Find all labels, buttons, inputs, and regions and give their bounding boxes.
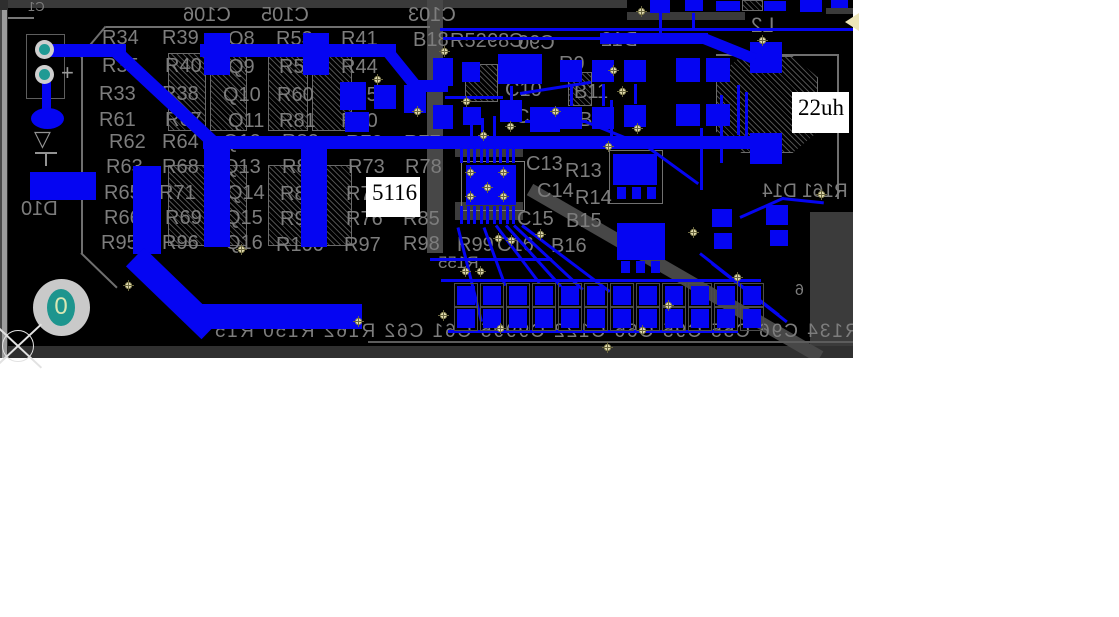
silkscreen-label: R40 xyxy=(165,56,202,76)
qfp-pin xyxy=(506,206,509,224)
silkscreen-label: R60 xyxy=(277,85,314,105)
silkscreen-label: C105 xyxy=(261,5,309,25)
sot-body xyxy=(613,154,657,185)
connector-pad xyxy=(691,286,709,305)
qfp-pin xyxy=(473,145,476,163)
silkscreen-label: R64 xyxy=(162,132,199,152)
smd-pad xyxy=(714,233,732,249)
top-edge-pad xyxy=(650,0,670,13)
through-hole-pad xyxy=(35,40,54,59)
origin-crosshair-icon xyxy=(0,321,43,371)
copper-trace xyxy=(200,44,396,57)
smd-pad xyxy=(340,82,366,110)
copper-bar xyxy=(196,304,362,329)
copper-bar xyxy=(133,166,161,254)
tick-line xyxy=(8,17,34,19)
diode-stem xyxy=(45,154,47,166)
left-gutter xyxy=(0,0,8,358)
via xyxy=(482,182,493,193)
silkscreen-label: R52 xyxy=(450,31,487,51)
top-edge-pad xyxy=(831,0,848,8)
silkscreen-label: R155 xyxy=(438,254,479,271)
qfp-pin xyxy=(493,145,496,163)
via xyxy=(498,191,509,202)
bottom-band xyxy=(8,346,853,358)
smd-pad xyxy=(433,105,453,129)
signal-trace xyxy=(430,258,552,261)
smd-pad xyxy=(676,104,700,126)
connector-pad xyxy=(535,309,553,328)
left-gutter-top xyxy=(0,0,8,10)
via xyxy=(372,74,383,85)
via xyxy=(438,310,449,321)
via xyxy=(495,323,506,334)
signal-trace xyxy=(441,279,761,282)
smd-pad xyxy=(374,85,396,109)
signal-trace xyxy=(745,92,748,137)
cursor-arrow-icon xyxy=(845,13,859,31)
copper-bar xyxy=(30,172,96,200)
board-outline-d2 xyxy=(80,252,117,288)
silkscreen-label: ▽ xyxy=(34,128,51,150)
sot-pin xyxy=(636,261,645,273)
qfp-pin xyxy=(493,206,496,224)
connector-pad xyxy=(717,286,735,305)
via xyxy=(608,65,619,76)
silkscreen-label: Q14 xyxy=(227,183,265,203)
via xyxy=(632,123,643,134)
silkscreen-label: R62 xyxy=(109,132,146,152)
via xyxy=(603,141,614,152)
qfp-pin xyxy=(486,206,489,224)
top-edge-pad xyxy=(685,0,703,11)
via xyxy=(505,121,516,132)
smd-pad xyxy=(463,107,481,125)
sot-pin xyxy=(621,261,630,273)
silkscreen-label: R78 xyxy=(405,157,442,177)
silkscreen-label: R96 xyxy=(162,233,199,253)
silkscreen-label: R69 xyxy=(165,208,202,228)
qfp-pin xyxy=(467,206,470,224)
via xyxy=(663,300,674,311)
smd-pad xyxy=(560,107,582,129)
connector-pad xyxy=(613,309,631,328)
copper-bar xyxy=(301,149,327,247)
via xyxy=(236,244,247,255)
signal-trace xyxy=(659,13,662,33)
silkscreen-label: C1 xyxy=(28,0,45,13)
via xyxy=(353,316,364,327)
connector-pad xyxy=(691,309,709,328)
via xyxy=(688,227,699,238)
via xyxy=(550,106,561,117)
annotation-box-5116[interactable]: 5116 xyxy=(366,177,420,217)
connector-pad xyxy=(561,309,579,328)
pad-zero-label: 0 xyxy=(47,289,75,326)
board-outline-v xyxy=(81,56,83,254)
via xyxy=(493,233,504,244)
silkscreen-label: R98 xyxy=(403,234,440,254)
silkscreen-label: R73 xyxy=(348,157,385,177)
sot-pin xyxy=(647,187,656,199)
signal-trace xyxy=(448,330,738,333)
silkscreen-label: R97 xyxy=(344,235,381,255)
inductor-pad xyxy=(750,133,782,164)
signal-trace xyxy=(440,28,853,31)
connector-pad xyxy=(743,286,761,305)
silkscreen-label: R14 xyxy=(575,188,612,208)
smd-pad xyxy=(462,62,480,82)
annotation-box-22uh[interactable]: 22uh xyxy=(792,92,849,133)
smd-pad xyxy=(345,112,369,132)
silkscreen-label: R13 xyxy=(565,161,602,181)
silkscreen-label: 6 xyxy=(795,283,804,299)
silkscreen-label: R39 xyxy=(162,28,199,48)
silkscreen-label: + xyxy=(61,62,74,84)
connector-pad xyxy=(509,309,527,328)
silkscreen-label: C13 xyxy=(526,154,563,174)
connector-pad xyxy=(535,286,553,305)
silkscreen-label: R71 xyxy=(159,183,196,203)
via xyxy=(602,342,613,353)
connector-pad xyxy=(587,309,605,328)
qfp-pin xyxy=(512,145,515,163)
via xyxy=(478,130,489,141)
qfp-pin xyxy=(506,145,509,163)
connector-pad xyxy=(483,286,501,305)
via xyxy=(465,167,476,178)
via xyxy=(636,6,647,17)
silkscreen-label: B15 xyxy=(566,211,602,231)
via xyxy=(475,266,486,277)
connector-pad xyxy=(639,286,657,305)
via xyxy=(617,86,628,97)
smd-pad xyxy=(676,58,700,82)
smd-pad xyxy=(433,58,453,86)
smd-pad xyxy=(706,58,730,82)
annotation-5116-text: 5116 xyxy=(372,180,417,205)
silkscreen-label: C90 xyxy=(518,33,555,53)
annotation-22uh-text: 22uh xyxy=(798,95,844,120)
smd-pad xyxy=(624,60,646,82)
connector-pad xyxy=(457,309,475,328)
connector-pad xyxy=(613,286,631,305)
qfp-pin xyxy=(499,145,502,163)
via xyxy=(465,191,476,202)
top-edge-pad xyxy=(800,0,822,12)
sot-body xyxy=(617,223,665,260)
via xyxy=(439,46,450,57)
signal-trace xyxy=(570,84,573,106)
via xyxy=(637,325,648,336)
smd-pad xyxy=(500,100,522,122)
qfp-pin xyxy=(486,145,489,163)
qfp-pin xyxy=(480,206,483,224)
silkscreen-label: R81 xyxy=(279,111,316,131)
top-edge-pad xyxy=(764,1,786,11)
silkscreen-label: L2 xyxy=(751,15,774,36)
silkscreen-label: D10 xyxy=(21,199,58,219)
copper-trace xyxy=(600,33,708,44)
sot-pin xyxy=(651,261,660,273)
smd-pad xyxy=(560,60,582,82)
via xyxy=(460,266,471,277)
silkscreen-label: R161 D14 xyxy=(762,182,848,201)
copper-bar xyxy=(204,149,230,247)
silkscreen-label: C103 xyxy=(408,5,456,25)
qfp-pin xyxy=(473,206,476,224)
qfp-pin xyxy=(499,206,502,224)
connector-pad xyxy=(665,309,683,328)
silkscreen-label: Q10 xyxy=(223,85,261,105)
silkscreen-label: Q9 xyxy=(228,57,255,77)
smd-pad xyxy=(712,209,732,227)
silkscreen-label: Q11 xyxy=(228,111,264,131)
smd-pad xyxy=(592,107,614,129)
connector-pad xyxy=(561,286,579,305)
signal-trace xyxy=(634,84,637,104)
connector-pad xyxy=(457,286,475,305)
silkscreen-label: R68 xyxy=(162,157,199,177)
smd-pad xyxy=(770,230,788,246)
silkscreen-label: C14 xyxy=(537,181,574,201)
silkscreen-label: R61 xyxy=(99,110,136,130)
top-band xyxy=(8,0,627,8)
connector-pad xyxy=(509,286,527,305)
footprint-hatch xyxy=(742,0,763,11)
via xyxy=(461,96,472,107)
silkscreen-label: Q15 xyxy=(225,208,263,228)
connector-pad xyxy=(587,286,605,305)
smd-pad xyxy=(706,104,730,126)
board-outline-h xyxy=(106,26,430,28)
sot-pin xyxy=(632,187,641,199)
via xyxy=(506,235,517,246)
via xyxy=(757,35,768,46)
silkscreen-label: R33 xyxy=(99,84,136,104)
signal-trace xyxy=(737,85,740,135)
signal-trace xyxy=(602,84,605,106)
top-edge-pad xyxy=(716,1,740,11)
signal-trace xyxy=(443,37,603,40)
connector-pad xyxy=(717,309,735,328)
silkscreen-label: C106 xyxy=(183,5,231,25)
via xyxy=(498,167,509,178)
through-hole-pad xyxy=(35,65,54,84)
signal-trace xyxy=(445,96,503,99)
connector-pad xyxy=(743,309,761,328)
smd-pad xyxy=(498,54,542,84)
smd-pad xyxy=(766,205,788,225)
signal-trace xyxy=(692,13,695,31)
qfp-pin xyxy=(512,206,515,224)
pcb-canvas[interactable]: 0 5116 22uh R34R35R33R61R62R63R65R66R95R… xyxy=(0,0,853,358)
qfp-pin xyxy=(460,145,463,163)
qfp-pin xyxy=(467,145,470,163)
qfp-pin xyxy=(460,206,463,224)
via xyxy=(535,229,546,240)
copper-pad xyxy=(31,108,64,129)
qfp-pin xyxy=(480,145,483,163)
via xyxy=(412,106,423,117)
sot-pin xyxy=(617,187,626,199)
via xyxy=(123,280,134,291)
via xyxy=(816,189,827,200)
via xyxy=(732,272,743,283)
